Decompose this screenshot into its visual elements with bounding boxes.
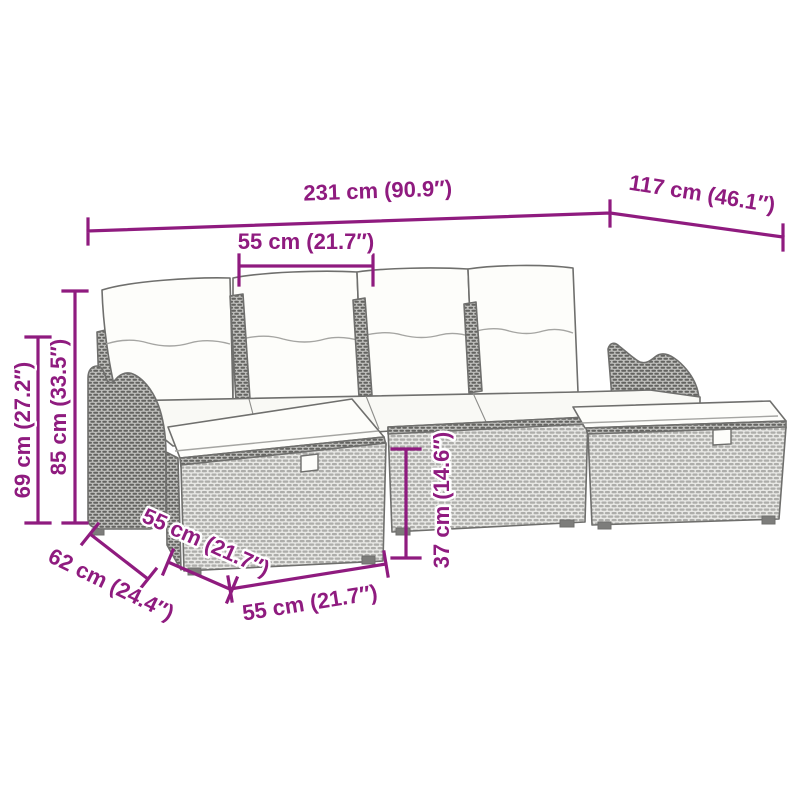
sofa-body (388, 417, 588, 535)
back-cushion-3 (357, 268, 473, 397)
dim-overall-depth-label: 117 cm (46.1″) (627, 170, 777, 218)
ottoman-handle (301, 454, 318, 472)
ottoman-foot (598, 522, 611, 529)
dim-arm-height: 69 cm (27.2″) (10, 337, 50, 523)
right-ottoman-front-face (588, 427, 786, 525)
dim-line (610, 213, 783, 250)
dim-overall-width-label: 231 cm (90.9″) (303, 175, 453, 205)
back-cushions (102, 265, 578, 401)
ottoman-foot (762, 516, 775, 524)
right-ottoman (573, 401, 786, 529)
sofa-foot (560, 520, 574, 527)
dimension-diagram-svg: 231 cm (90.9″) 117 cm (46.1″) 55 cm (21.… (0, 0, 800, 800)
dim-seat-width-label: 55 cm (21.7″) (238, 229, 375, 254)
dim-back-height-label: 85 cm (33.5″) (46, 339, 71, 476)
dim-overall-depth: 117 cm (46.1″) (610, 170, 783, 250)
back-cushion-2 (233, 271, 362, 400)
dim-back-height: 85 cm (33.5″) (46, 291, 87, 523)
ottoman-foot (362, 556, 375, 564)
body-front-face (388, 417, 588, 532)
ottoman-handle (713, 429, 731, 445)
sofa-foot (396, 528, 410, 535)
dim-arm-height-label: 69 cm (27.2″) (10, 362, 35, 499)
dim-seat-height-label: 37 cm (14.6″) (429, 432, 454, 569)
dim-ottoman-depth: 62 cm (24.4″) (44, 524, 178, 625)
dim-ottoman-front-width-label: 55 cm (21.7″) (240, 580, 379, 626)
product-dimension-image: 231 cm (90.9″) 117 cm (46.1″) 55 cm (21.… (0, 0, 800, 800)
dim-ottoman-depth-label: 62 cm (24.4″) (44, 543, 178, 625)
